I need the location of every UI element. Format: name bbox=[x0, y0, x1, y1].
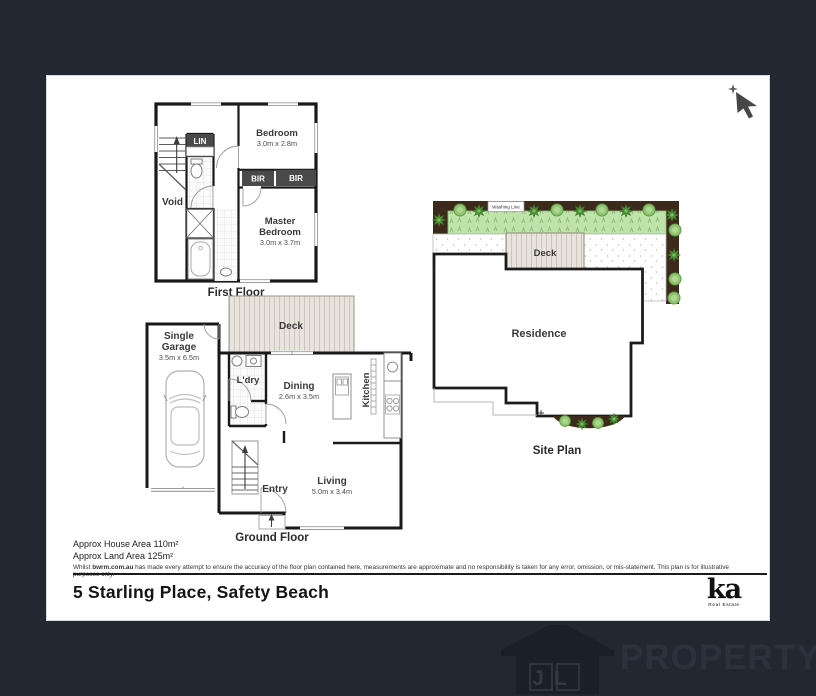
car bbox=[164, 371, 206, 467]
site-plan: Deck Washing Line bbox=[429, 198, 685, 460]
agency-logo: ka Real Estate bbox=[689, 577, 759, 608]
dining-dims: 2.6m x 3.5m bbox=[279, 392, 319, 401]
bir-left-label: BIR bbox=[251, 175, 265, 184]
watermark-initials: JL bbox=[532, 667, 577, 690]
residence-label: Residence bbox=[511, 328, 566, 340]
master-label-2: Bedroom bbox=[259, 227, 301, 238]
land-area-note: Approx Land Area 125m² bbox=[73, 551, 745, 563]
house-logo-icon: JL bbox=[500, 620, 618, 696]
ldry-label: L'dry bbox=[237, 375, 261, 386]
living-dims: 5.0m x 3.4m bbox=[312, 487, 352, 496]
entry-label: Entry bbox=[262, 484, 288, 495]
living-label: Living bbox=[317, 476, 346, 487]
site-deck-label: Deck bbox=[534, 248, 557, 259]
agency-logo-subtext: Real Estate bbox=[689, 603, 759, 608]
kitchen-bench bbox=[384, 353, 401, 438]
agency-logo-text: ka bbox=[689, 577, 759, 603]
master-dims: 3.0m x 3.7m bbox=[260, 238, 300, 247]
footer-divider bbox=[73, 573, 767, 575]
wc-toilet bbox=[191, 159, 202, 178]
bedroom-dims: 3.0m x 2.8m bbox=[257, 139, 297, 148]
ground-wc-toilet bbox=[231, 406, 249, 418]
kitchen-label: Kitchen bbox=[361, 372, 372, 407]
laundry-fixtures bbox=[232, 356, 261, 367]
garage-label-1: Single bbox=[164, 331, 194, 342]
house-area-note: Approx House Area 110m² bbox=[73, 539, 745, 551]
ground-floor-plan: Deck bbox=[142, 291, 417, 546]
disclaimer-site: bwrm.com.au bbox=[92, 564, 133, 571]
entry-stairs-arrow bbox=[242, 445, 248, 453]
disclaimer-text: Whilst bwrm.com.au has made every attemp… bbox=[73, 564, 745, 578]
master-label-1: Master bbox=[265, 216, 296, 227]
watermark-brand-text: PROPERTY bbox=[620, 620, 816, 696]
page-background: LIN BIR bbox=[0, 0, 816, 696]
kitchen-island bbox=[333, 374, 351, 419]
property-watermark: JL PROPERTY bbox=[500, 620, 816, 696]
property-address: 5 Starling Place, Safety Beach bbox=[73, 582, 329, 603]
bathtub bbox=[188, 239, 213, 279]
garage-dims: 3.5m x 6.5m bbox=[159, 353, 199, 362]
garage-label-2: Garage bbox=[162, 342, 197, 353]
washing-line-label: Washing Line bbox=[492, 204, 520, 209]
site-plan-title: Site Plan bbox=[533, 445, 582, 457]
ground-deck-label: Deck bbox=[279, 321, 303, 332]
compass-arrow-icon bbox=[736, 92, 757, 119]
bedroom-label: Bedroom bbox=[256, 128, 298, 139]
lin-label: LIN bbox=[194, 137, 207, 146]
floorplan-sheet: LIN BIR bbox=[46, 75, 770, 621]
compass-north-arrow bbox=[712, 81, 772, 121]
basin bbox=[221, 268, 232, 276]
first-floor-plan: LIN BIR bbox=[147, 98, 327, 308]
bir-right-label: BIR bbox=[289, 174, 303, 183]
dining-label: Dining bbox=[283, 381, 314, 392]
void-label: Void bbox=[162, 197, 183, 208]
